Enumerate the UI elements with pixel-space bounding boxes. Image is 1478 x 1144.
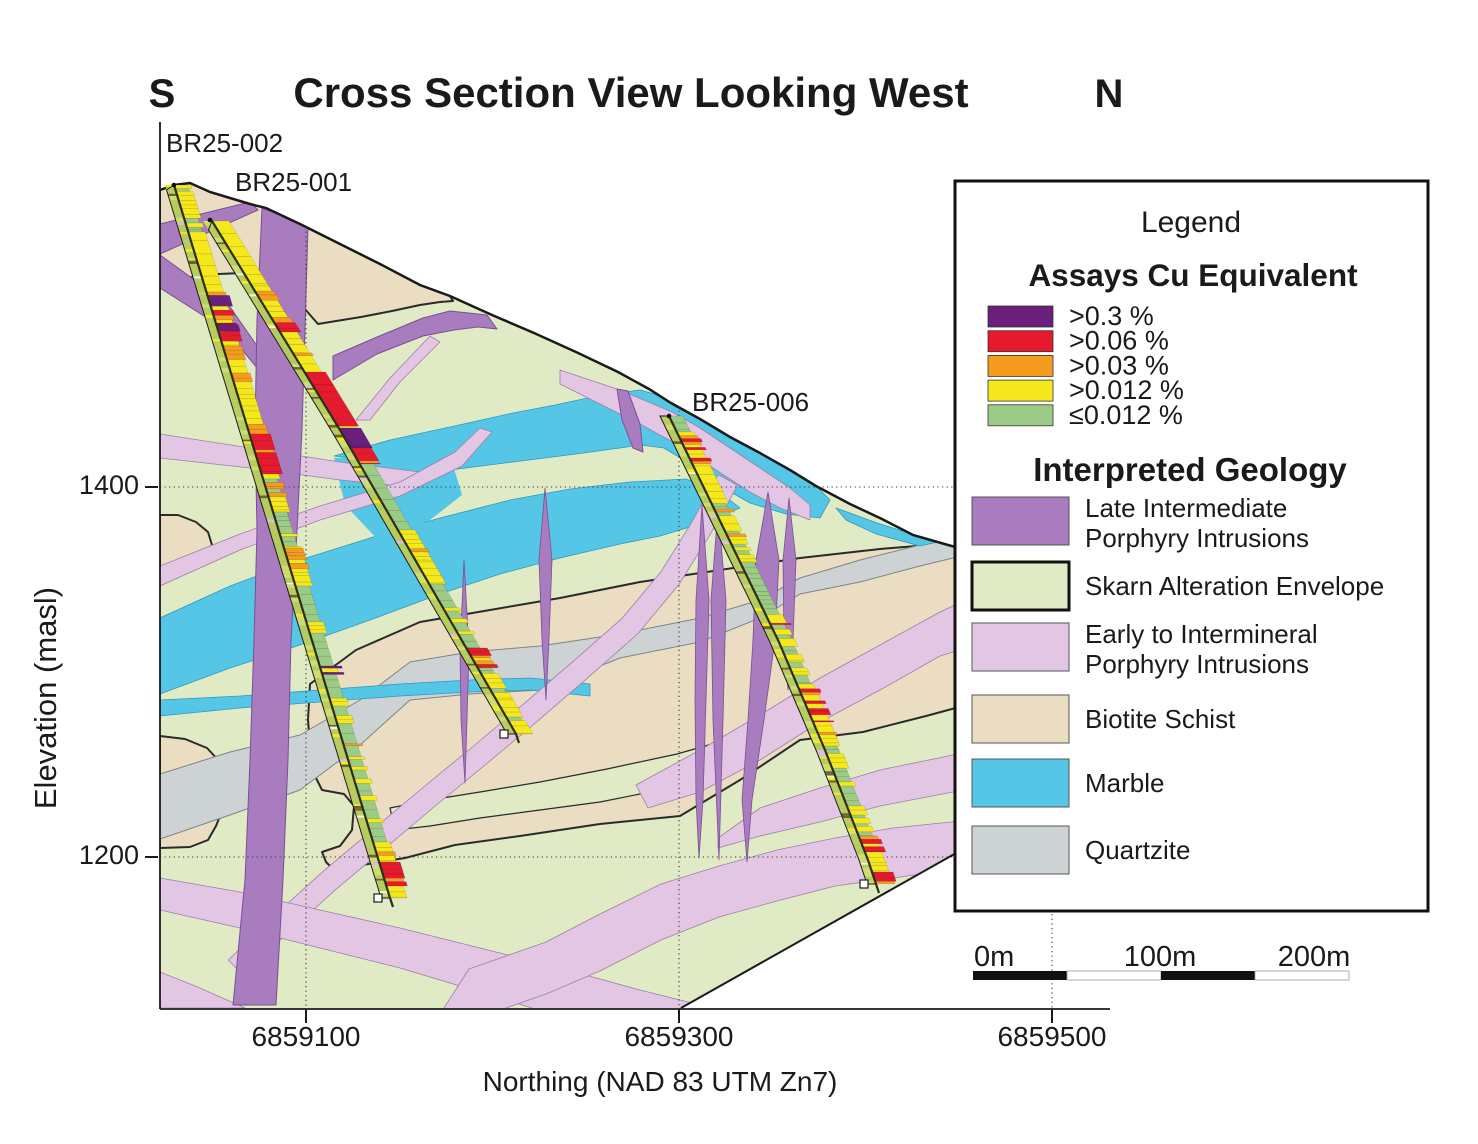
svg-text:≤0.012 %: ≤0.012 %	[1069, 400, 1183, 430]
svg-text:Late Intermediate: Late Intermediate	[1085, 493, 1287, 523]
svg-text:Northing (NAD 83 UTM Zn7): Northing (NAD 83 UTM Zn7)	[483, 1066, 838, 1097]
svg-text:Porphyry Intrusions: Porphyry Intrusions	[1085, 523, 1309, 553]
svg-text:Assays Cu Equivalent: Assays Cu Equivalent	[1028, 257, 1358, 293]
svg-text:BR25-002: BR25-002	[166, 128, 283, 158]
svg-text:Elevation (masl): Elevation (masl)	[28, 587, 63, 809]
svg-text:Marble: Marble	[1085, 768, 1164, 798]
svg-text:Biotite Schist: Biotite Schist	[1085, 704, 1236, 734]
svg-text:1200: 1200	[79, 840, 139, 870]
svg-text:0m: 0m	[974, 941, 1014, 973]
svg-text:N: N	[1095, 72, 1124, 116]
svg-text:6859500: 6859500	[997, 1021, 1106, 1052]
svg-text:6859100: 6859100	[251, 1021, 360, 1052]
svg-text:100m: 100m	[1124, 941, 1197, 973]
svg-text:Legend: Legend	[1141, 206, 1241, 239]
svg-text:Skarn Alteration Envelope: Skarn Alteration Envelope	[1085, 571, 1384, 601]
svg-text:BR25-001: BR25-001	[235, 167, 352, 197]
svg-text:Interpreted Geology: Interpreted Geology	[1033, 451, 1347, 488]
svg-text:6859300: 6859300	[624, 1021, 733, 1052]
svg-text:1400: 1400	[79, 470, 139, 500]
svg-text:Quartzite: Quartzite	[1085, 835, 1191, 865]
svg-text:Porphyry Intrusions: Porphyry Intrusions	[1085, 649, 1309, 679]
svg-text:Early to Intermineral: Early to Intermineral	[1085, 619, 1318, 649]
svg-text:BR25-006: BR25-006	[692, 387, 809, 417]
svg-text:200m: 200m	[1278, 941, 1351, 973]
svg-text:S: S	[149, 72, 176, 116]
svg-text:Cross Section View Looking Wes: Cross Section View Looking West	[293, 69, 968, 116]
